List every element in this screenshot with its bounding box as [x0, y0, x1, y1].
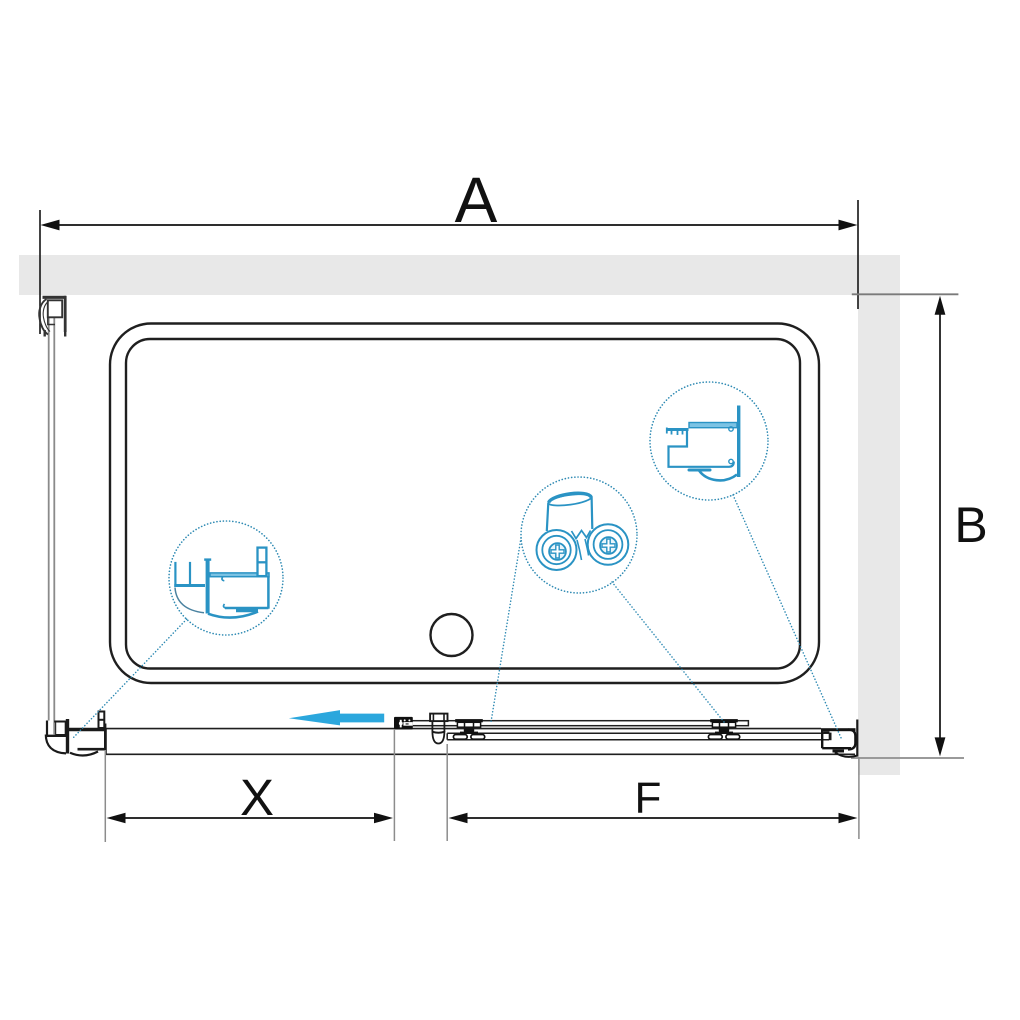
svg-text:F: F — [635, 774, 662, 823]
svg-text:B: B — [954, 497, 987, 553]
svg-text:A: A — [455, 164, 498, 236]
svg-text:X: X — [240, 769, 274, 826]
